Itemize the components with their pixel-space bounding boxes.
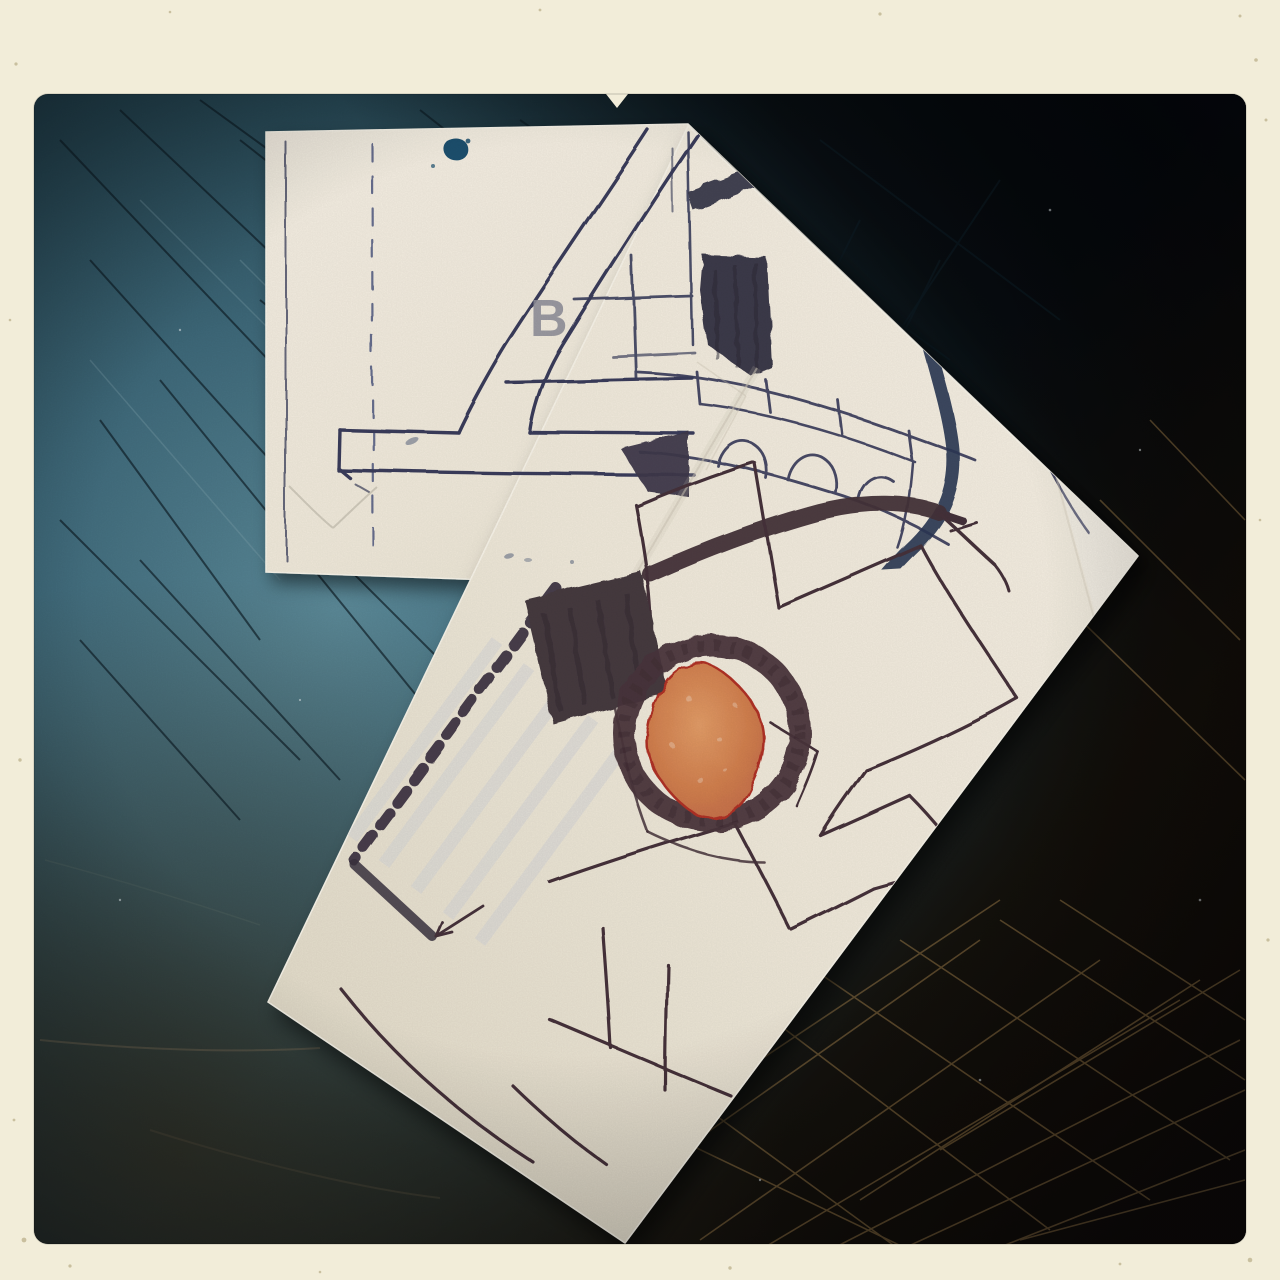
vignette — [34, 94, 1246, 1244]
photo-frame: B — [0, 0, 1280, 1280]
photo-image: B — [0, 0, 1280, 1280]
